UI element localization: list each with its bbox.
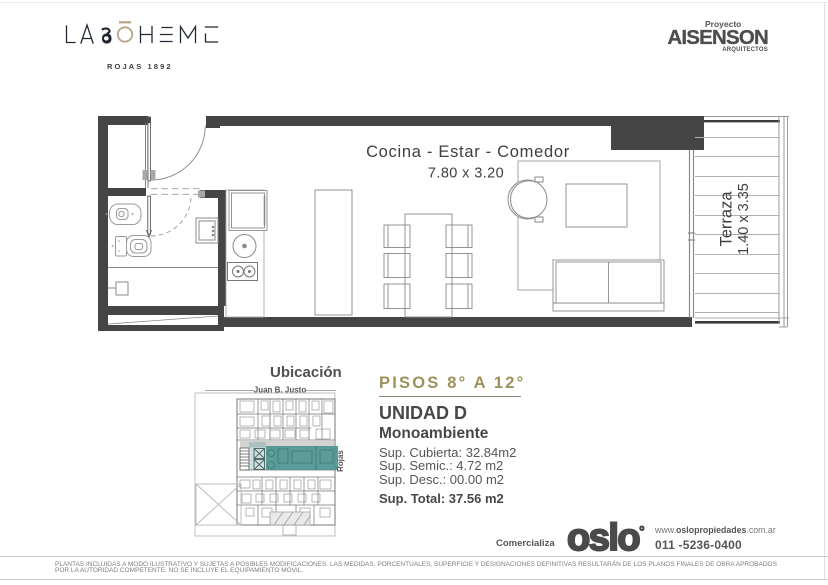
svg-text:Cocina - Estar - Comedor: Cocina - Estar - Comedor <box>366 143 570 161</box>
svg-text:1.40 x 3.35: 1.40 x 3.35 <box>736 183 752 255</box>
svg-text:Rojas: Rojas <box>336 450 345 472</box>
svg-text:Terraza: Terraza <box>718 191 736 247</box>
svg-text:Juan B. Justo: Juan B. Justo <box>254 386 307 395</box>
svg-text:7.80 x 3.20: 7.80 x 3.20 <box>428 166 504 182</box>
